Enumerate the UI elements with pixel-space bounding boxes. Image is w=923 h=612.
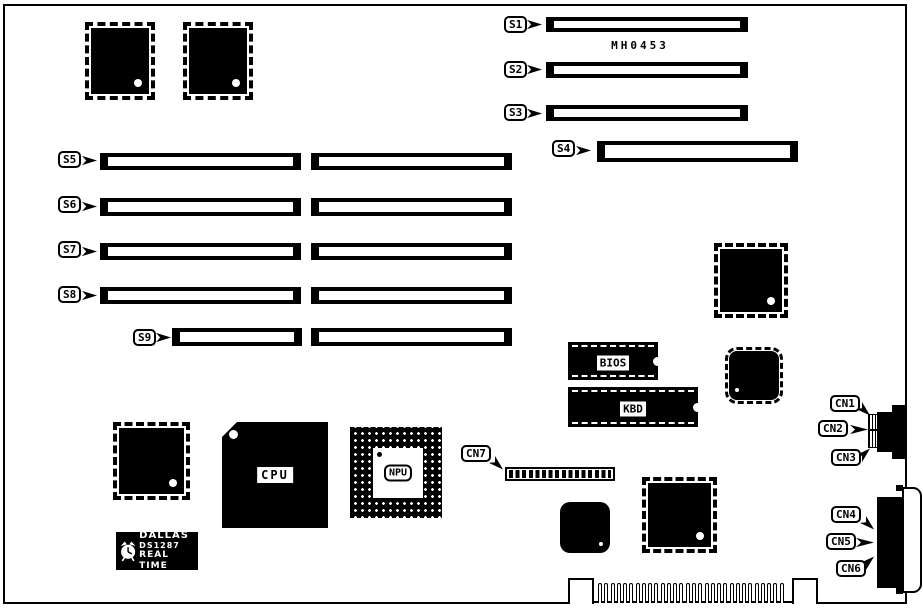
slot-s8-right xyxy=(311,287,512,304)
qfp-chip-botmid xyxy=(648,483,711,547)
pin1-dot xyxy=(134,79,142,87)
qfp-chip-topleft-2 xyxy=(189,28,247,94)
edge-connector-fingers xyxy=(598,583,784,603)
slot-s7-right xyxy=(311,243,512,260)
slot-s4 xyxy=(597,141,798,162)
slot-s5-right xyxy=(311,153,512,170)
pin1-dot xyxy=(229,430,238,439)
slot-s6-left xyxy=(100,198,301,216)
connector-label-cn3: CN3 xyxy=(831,449,861,466)
cn456-port-block xyxy=(877,497,903,588)
pin1-dot xyxy=(599,542,603,546)
alarm-clock-icon xyxy=(119,538,137,564)
connector-label-cn2: CN2 xyxy=(818,420,848,437)
kbd-label: KBD xyxy=(620,402,646,417)
slot-label-s6: S6 xyxy=(58,196,81,213)
connector-label-cn6: CN6 xyxy=(836,560,866,577)
bios-chip: BIOS xyxy=(568,342,658,380)
npu-chip: NPU xyxy=(350,427,442,518)
io-bracket xyxy=(902,487,922,593)
edge-connector-left-tab xyxy=(568,578,594,604)
slot-label-s8: S8 xyxy=(58,286,81,303)
pin1-dot xyxy=(232,79,240,87)
slot-label-s1: S1 xyxy=(504,16,527,33)
slot-label-s5: S5 xyxy=(58,151,81,168)
pin1-dot xyxy=(696,532,704,540)
slot-label-s3: S3 xyxy=(504,104,527,121)
kbd-controller-chip: KBD xyxy=(568,387,698,427)
cpu-label: CPU xyxy=(257,467,293,483)
slot-s6-right xyxy=(311,198,512,216)
bracket-tab-top xyxy=(896,485,903,491)
edge-connector-right-tab xyxy=(792,578,818,604)
cn7-pin-header xyxy=(505,467,615,481)
pin1-dot xyxy=(377,452,382,457)
bios-label: BIOS xyxy=(597,356,630,371)
slot-s9-right xyxy=(311,328,512,346)
slot-label-s9: S9 xyxy=(133,329,156,346)
connector-label-cn7: CN7 xyxy=(461,445,491,462)
npu-core: NPU xyxy=(373,448,423,498)
qfp-chip-topleft-1 xyxy=(91,28,149,94)
bracket-tab-bottom xyxy=(896,588,903,594)
pin1-dot xyxy=(169,479,177,487)
part-number: MH0453 xyxy=(594,39,686,52)
pin1-dot xyxy=(767,297,775,305)
npu-label: NPU xyxy=(384,465,412,482)
plcc-chip-botmid xyxy=(560,502,610,553)
slot-s3 xyxy=(546,105,748,121)
slot-s5-left xyxy=(100,153,301,170)
slot-s9-left xyxy=(172,328,302,346)
connector-label-cn1: CN1 xyxy=(830,395,860,412)
slot-s1 xyxy=(546,17,748,32)
cpu-chip: CPU xyxy=(222,422,328,528)
cn123-port-flange xyxy=(892,405,907,459)
rtc-brand: DALLAS xyxy=(139,530,196,541)
qfp-chip-leftmid xyxy=(119,428,184,494)
slot-s7-left xyxy=(100,243,301,260)
rtc-type: REAL TIME xyxy=(139,550,196,572)
rtc-model: DS1287 xyxy=(139,541,196,550)
plcc-chip-right xyxy=(729,351,779,400)
slot-label-s4: S4 xyxy=(552,140,575,157)
connector-label-cn5: CN5 xyxy=(826,533,856,550)
slot-label-s2: S2 xyxy=(504,61,527,78)
slot-s2 xyxy=(546,62,748,78)
motherboard-diagram: S1 MH0453 S2 S3 S4 S5 S6 S7 S8 S9 BIOS xyxy=(0,0,923,612)
slot-s8-left xyxy=(100,287,301,304)
connector-label-cn4: CN4 xyxy=(831,506,861,523)
qfp-chip-right xyxy=(720,249,782,312)
slot-label-s7: S7 xyxy=(58,241,81,258)
dallas-rtc-chip: DALLAS DS1287 REAL TIME xyxy=(116,532,198,570)
pin1-dot xyxy=(735,388,739,392)
